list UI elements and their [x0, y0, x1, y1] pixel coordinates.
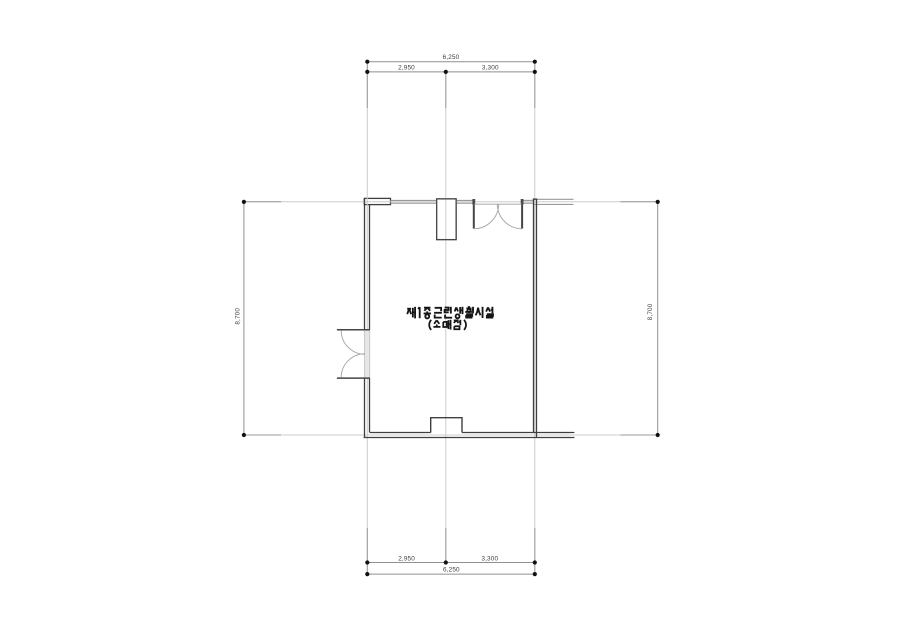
svg-text:6,250: 6,250 — [443, 566, 460, 573]
svg-text:3,300: 3,300 — [482, 65, 499, 72]
svg-text:6,250: 6,250 — [443, 54, 460, 61]
svg-text:2,950: 2,950 — [398, 65, 415, 72]
svg-text:3,300: 3,300 — [481, 555, 498, 562]
svg-text:8,700: 8,700 — [647, 303, 654, 320]
svg-text:2,950: 2,950 — [398, 555, 415, 562]
svg-text:8,700: 8,700 — [235, 308, 242, 325]
